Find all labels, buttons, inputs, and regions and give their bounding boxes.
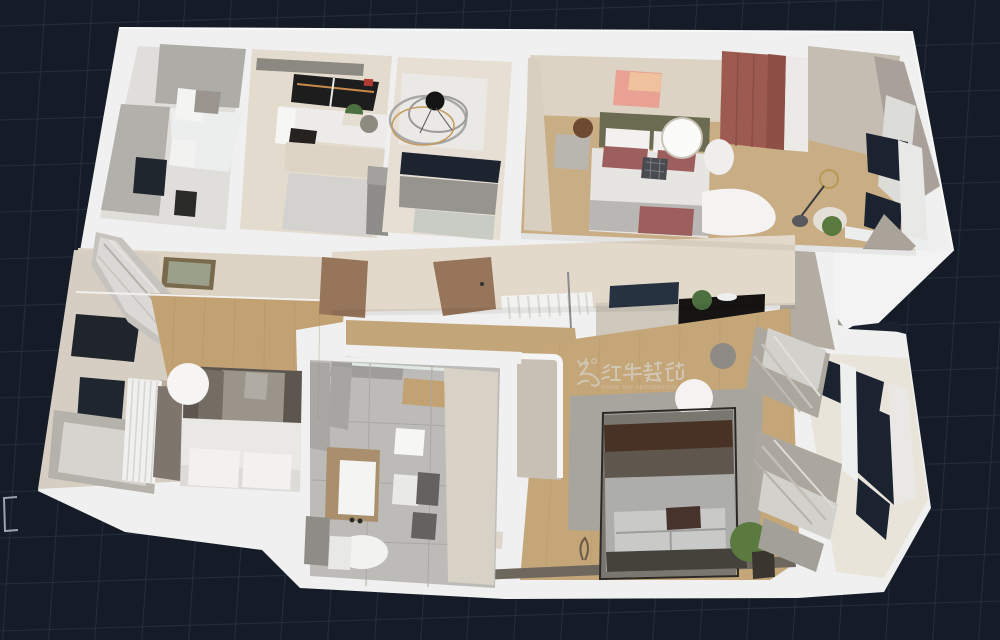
svg-text:HONG NIU DECORATION: HONG NIU DECORATION xyxy=(602,385,677,391)
